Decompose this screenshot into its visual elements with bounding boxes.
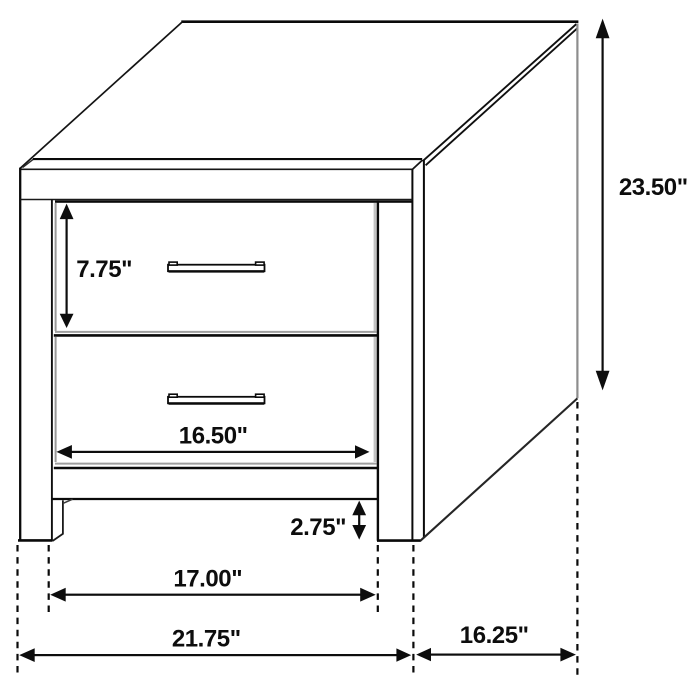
svg-text:16.50": 16.50" [179, 422, 248, 449]
svg-text:2.75": 2.75" [290, 514, 346, 541]
svg-text:17.00": 17.00" [173, 566, 242, 593]
svg-text:21.75": 21.75" [172, 626, 241, 653]
svg-text:23.50": 23.50" [619, 174, 688, 201]
svg-text:16.25": 16.25" [460, 622, 529, 649]
svg-text:7.75": 7.75" [76, 256, 132, 283]
